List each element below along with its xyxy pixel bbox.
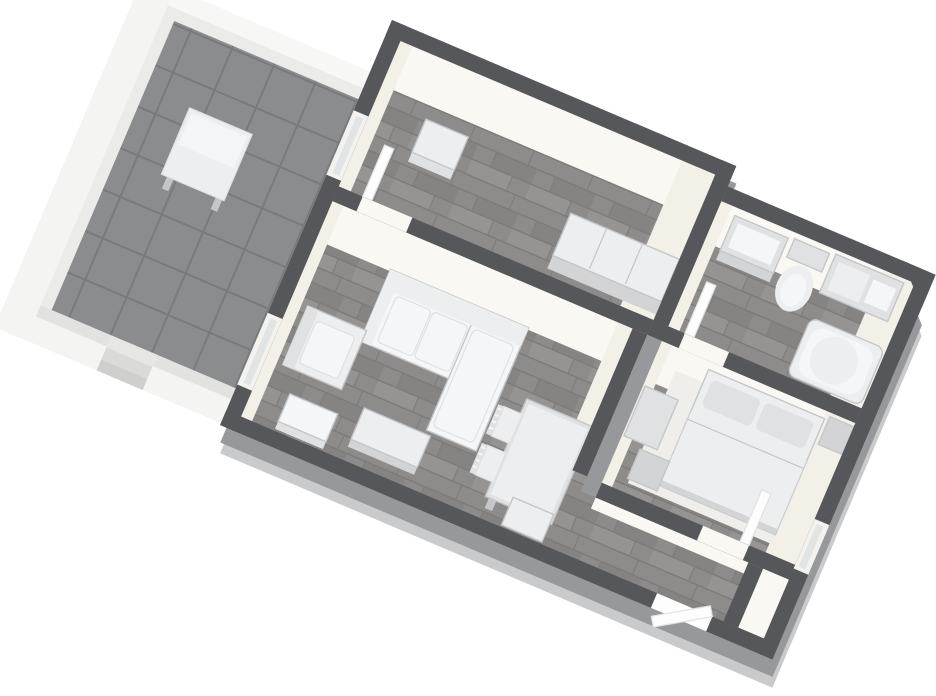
floor-plan-stage: [0, 0, 936, 696]
floor-plan-canvas: [0, 0, 936, 696]
scene-rotated-group: [0, 0, 936, 688]
